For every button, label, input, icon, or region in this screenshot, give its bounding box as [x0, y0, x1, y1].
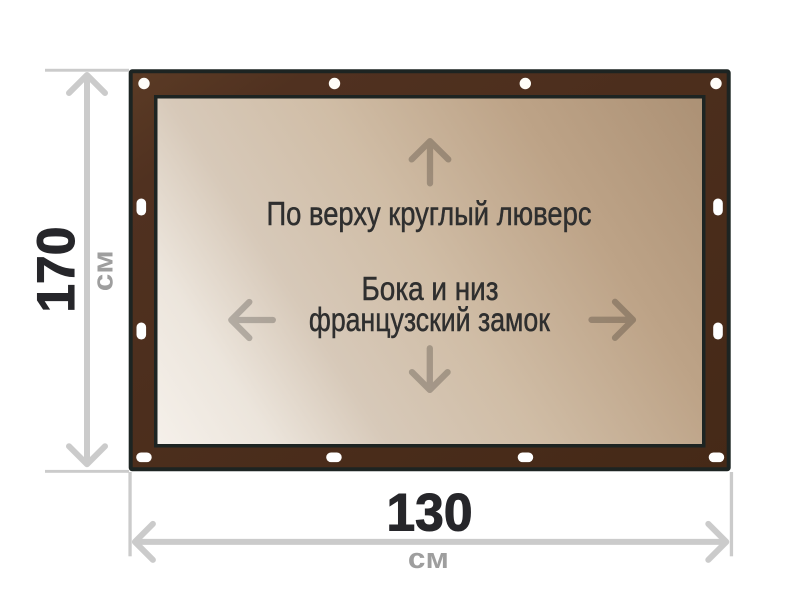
svg-text:130: 130 [387, 484, 473, 543]
svg-text:см: см [408, 543, 449, 575]
svg-text:По верху круглый люверс: По верху круглый люверс [267, 196, 592, 233]
svg-text:170: 170 [27, 227, 86, 313]
svg-text:см: см [88, 250, 120, 291]
svg-text:французский замок: французский замок [309, 302, 550, 339]
